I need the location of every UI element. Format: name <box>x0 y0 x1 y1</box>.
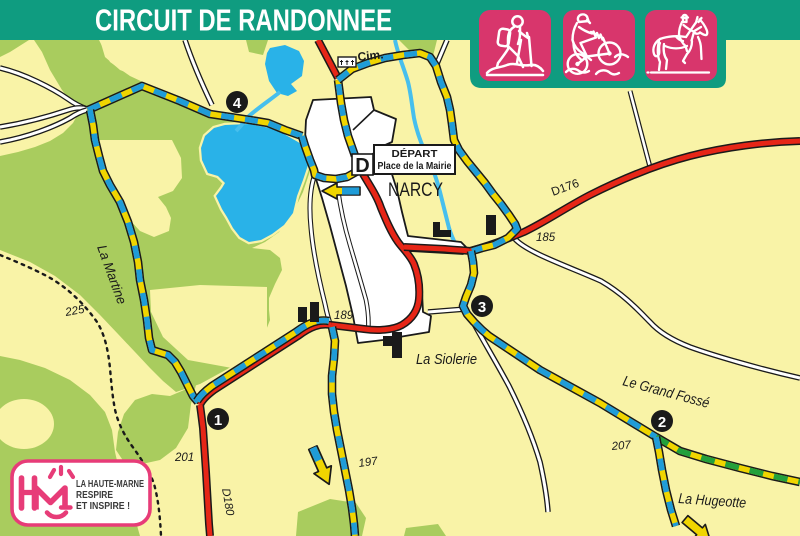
svg-text:Place de la Mairie: Place de la Mairie <box>378 160 452 172</box>
svg-text:CIRCUIT DE RANDONNEE: CIRCUIT DE RANDONNEE <box>95 3 392 38</box>
svg-text:189: 189 <box>334 310 354 322</box>
svg-text:ET INSPIRE !: ET INSPIRE ! <box>76 501 130 512</box>
svg-text:2: 2 <box>658 414 666 431</box>
svg-text:1: 1 <box>214 412 222 429</box>
svg-text:DÉPART: DÉPART <box>392 147 439 160</box>
svg-text:185: 185 <box>536 232 556 244</box>
svg-text:4: 4 <box>233 95 242 112</box>
svg-text:Cim.: Cim. <box>357 47 384 64</box>
svg-text:La Siolerie: La Siolerie <box>416 352 477 368</box>
svg-text:RESPIRE: RESPIRE <box>76 490 113 501</box>
svg-text:3: 3 <box>478 299 486 316</box>
svg-text:207: 207 <box>610 439 632 453</box>
svg-text:LA HAUTE-MARNE: LA HAUTE-MARNE <box>76 479 144 490</box>
svg-text:NARCY: NARCY <box>388 180 443 201</box>
svg-text:D: D <box>355 155 369 177</box>
svg-text:201: 201 <box>174 452 194 464</box>
